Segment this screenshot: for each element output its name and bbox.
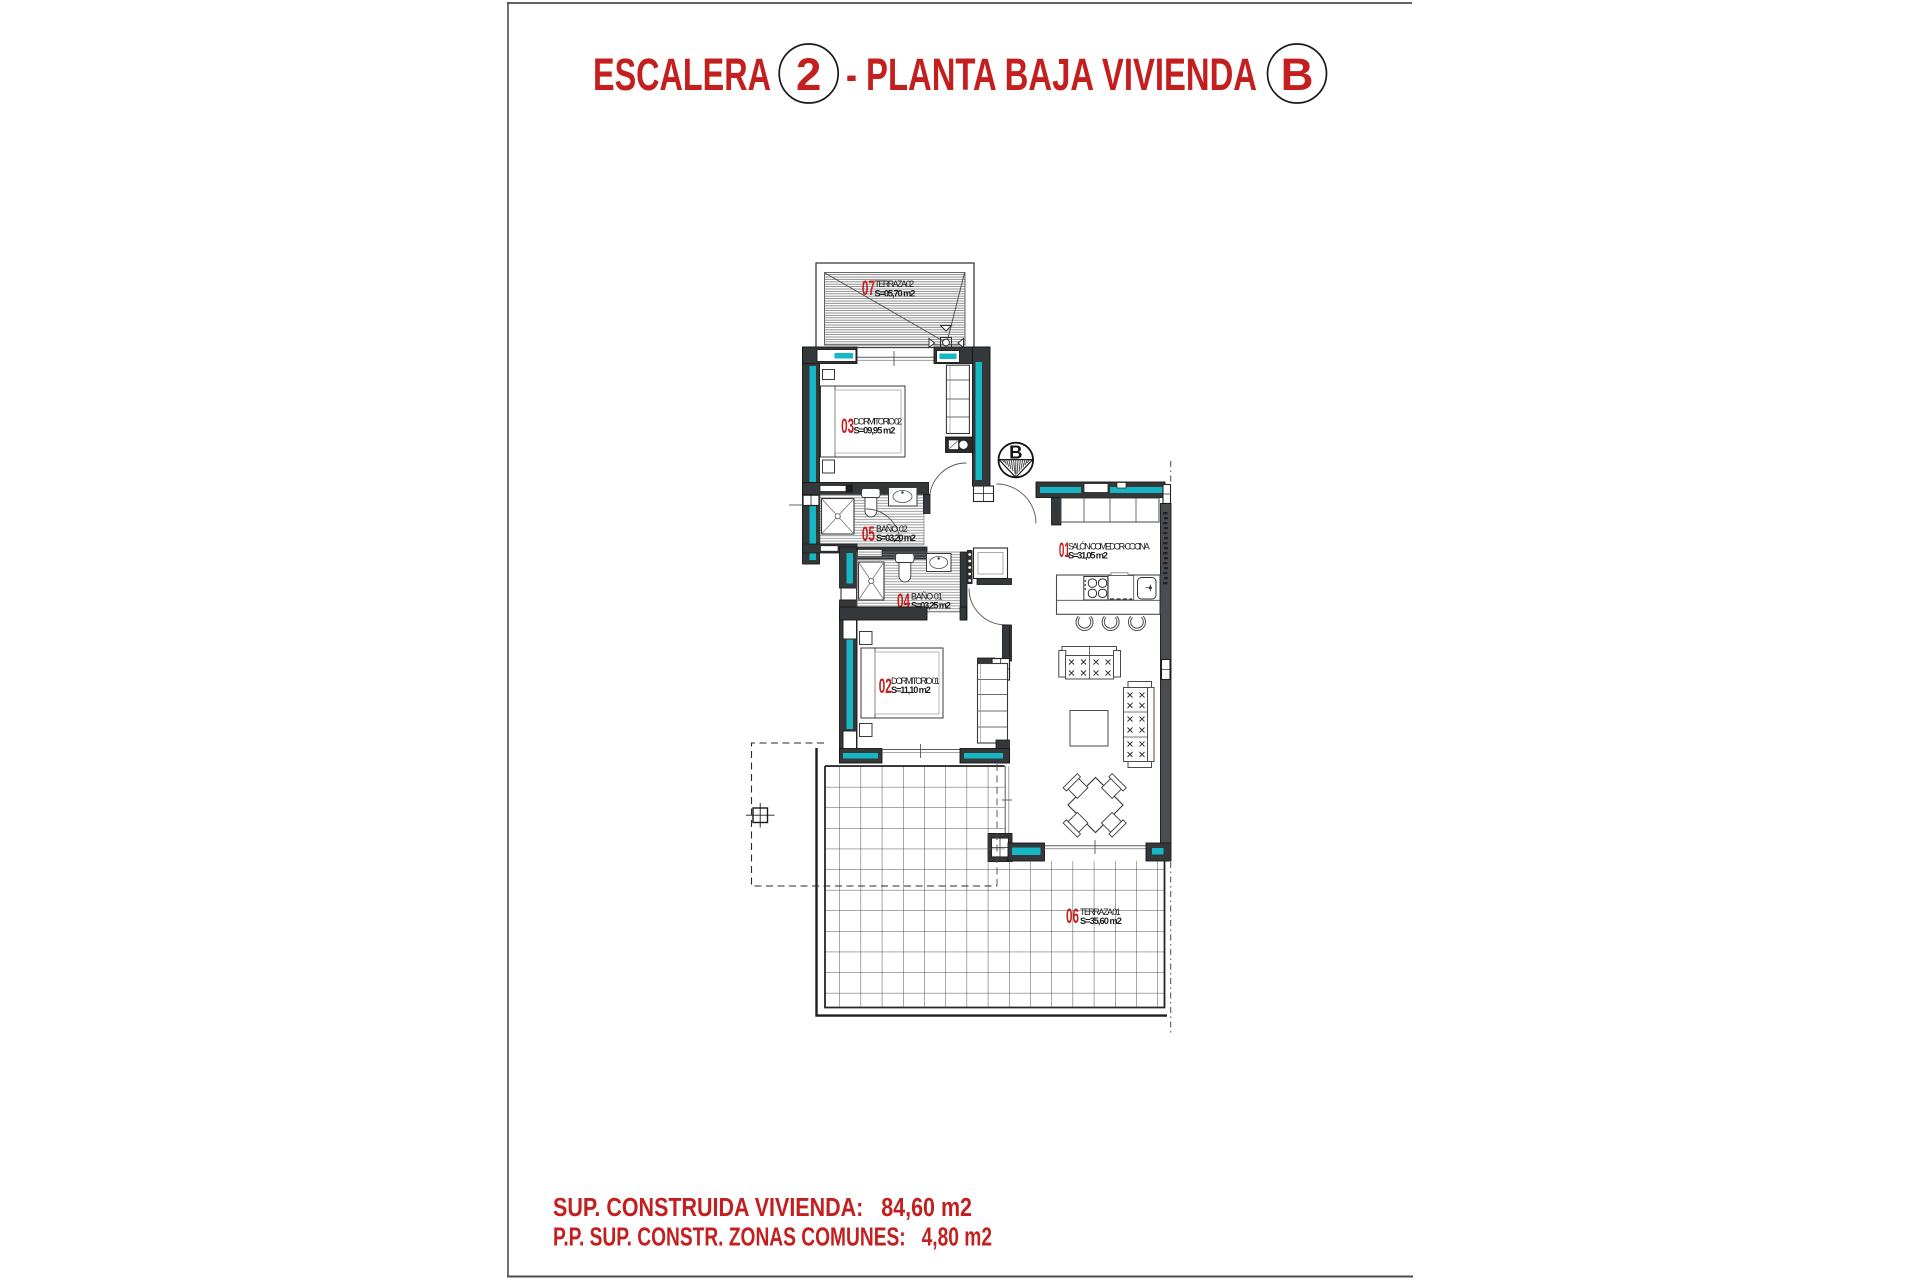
svg-text:2: 2 xyxy=(796,49,821,100)
svg-text:S=09,95 m2: S=09,95 m2 xyxy=(854,426,896,436)
svg-text:ESCALERA: ESCALERA xyxy=(593,49,771,100)
svg-text:B: B xyxy=(1281,49,1314,100)
svg-text:S=03,20 m2: S=03,20 m2 xyxy=(876,533,916,543)
svg-text:06: 06 xyxy=(1066,904,1079,928)
svg-text:SUP. CONSTRUIDA VIVIENDA: 84: SUP. CONSTRUIDA VIVIENDA: 84,60 m2 xyxy=(553,1194,972,1222)
svg-text:05: 05 xyxy=(862,522,875,546)
svg-text:TERRAZA 02: TERRAZA 02 xyxy=(875,279,915,289)
svg-text:S=31,05 m2: S=31,05 m2 xyxy=(1068,551,1108,561)
svg-text:02: 02 xyxy=(879,674,892,698)
svg-text:S=11,10 m2: S=11,10 m2 xyxy=(891,685,931,695)
svg-text:S=35,60 m2: S=35,60 m2 xyxy=(1080,916,1122,926)
svg-text:03: 03 xyxy=(841,414,854,438)
svg-text:P.P. SUP. CONSTR. ZONAS COMUNE: P.P. SUP. CONSTR. ZONAS COMUNES: 4,80 m2 xyxy=(553,1224,992,1252)
svg-text:S=05,70 m2: S=05,70 m2 xyxy=(875,289,916,299)
svg-text:07: 07 xyxy=(862,276,875,300)
svg-text:- PLANTA BAJA VIVIENDA: - PLANTA BAJA VIVIENDA xyxy=(846,49,1257,100)
